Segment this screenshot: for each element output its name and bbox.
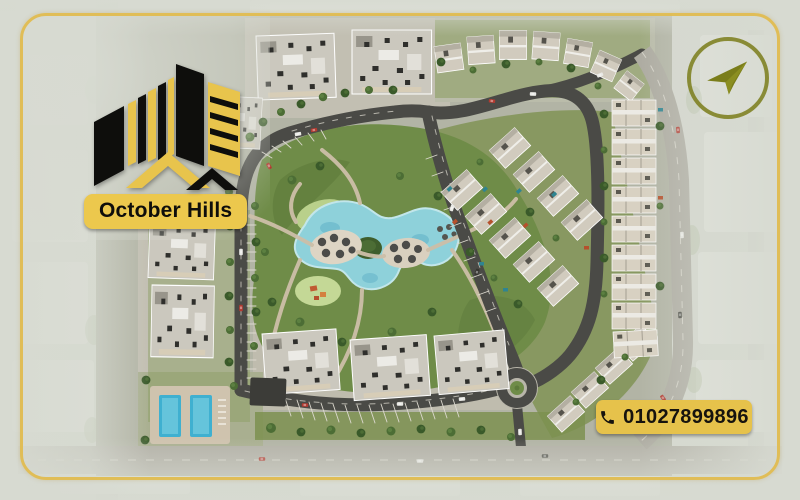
phone-icon (599, 409, 616, 426)
brand-logo: October Hills (84, 58, 254, 229)
paper-plane-icon (702, 54, 754, 102)
brand-name-badge: October Hills (84, 194, 247, 229)
swimming-pools (150, 386, 230, 444)
phone-badge[interactable]: 01027899896 (596, 400, 752, 434)
building-logo-icon (92, 58, 242, 190)
phone-number: 01027899896 (623, 406, 749, 429)
compass-badge (687, 37, 769, 119)
october-hills-masterplan-ad: October Hills 01027899896 (0, 0, 800, 500)
